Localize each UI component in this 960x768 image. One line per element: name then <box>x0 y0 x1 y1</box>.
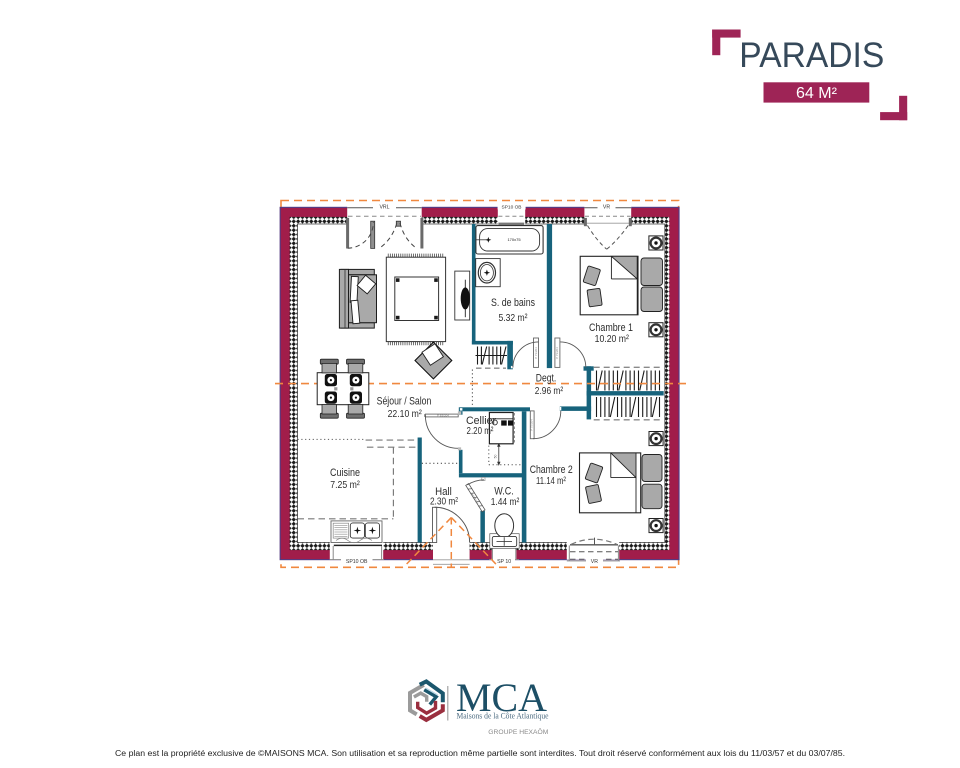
svg-text:VRL: VRL <box>379 205 389 211</box>
svg-text:VR: VR <box>591 559 598 565</box>
svg-text:SP10 OB: SP10 OB <box>346 559 368 565</box>
svg-text:P 75/204: P 75/204 <box>530 419 534 431</box>
svg-text:5.32 m²: 5.32 m² <box>499 313 528 324</box>
svg-text:S. de bains: S. de bains <box>491 297 535 309</box>
svg-text:GROUPE HEXAŌM: GROUPE HEXAŌM <box>488 728 548 736</box>
svg-text:50: 50 <box>493 455 497 459</box>
svg-text:Chambre 2: Chambre 2 <box>530 464 573 476</box>
svg-text:SP 10: SP 10 <box>497 559 511 565</box>
svg-text:2.30 m²: 2.30 m² <box>430 496 459 507</box>
svg-text:2.20 m²: 2.20 m² <box>467 426 494 437</box>
svg-text:Cuisine: Cuisine <box>330 467 360 479</box>
svg-text:Séjour / Salon: Séjour / Salon <box>377 396 432 408</box>
svg-text:P 83/204: P 83/204 <box>437 414 449 418</box>
svg-text:Degt.: Degt. <box>536 372 556 384</box>
svg-text:Ce plan est la propriété exclu: Ce plan est la propriété exclusive de ©M… <box>115 749 845 758</box>
svg-text:2.96 m²: 2.96 m² <box>535 386 564 397</box>
svg-text:10.20 m²: 10.20 m² <box>595 334 630 345</box>
svg-text:Maisons de la Côte Atlantique: Maisons de la Côte Atlantique <box>457 711 549 721</box>
svg-text:1.44 m²: 1.44 m² <box>491 497 520 508</box>
svg-text:P 73/204: P 73/204 <box>534 347 538 359</box>
svg-text:VR: VR <box>603 205 610 211</box>
svg-text:P 73/204: P 73/204 <box>555 347 559 359</box>
svg-text:64 M²: 64 M² <box>796 85 837 102</box>
svg-text:W.C.: W.C. <box>494 485 514 497</box>
svg-text:7.25 m²: 7.25 m² <box>330 480 360 491</box>
svg-text:PARADIS: PARADIS <box>739 35 884 75</box>
svg-text:22.10 m²: 22.10 m² <box>388 409 423 420</box>
svg-text:170x75: 170x75 <box>507 237 521 242</box>
svg-text:Chambre 1: Chambre 1 <box>589 322 633 334</box>
svg-text:SP10 OB: SP10 OB <box>502 205 522 211</box>
svg-text:11.14 m²: 11.14 m² <box>536 476 566 487</box>
